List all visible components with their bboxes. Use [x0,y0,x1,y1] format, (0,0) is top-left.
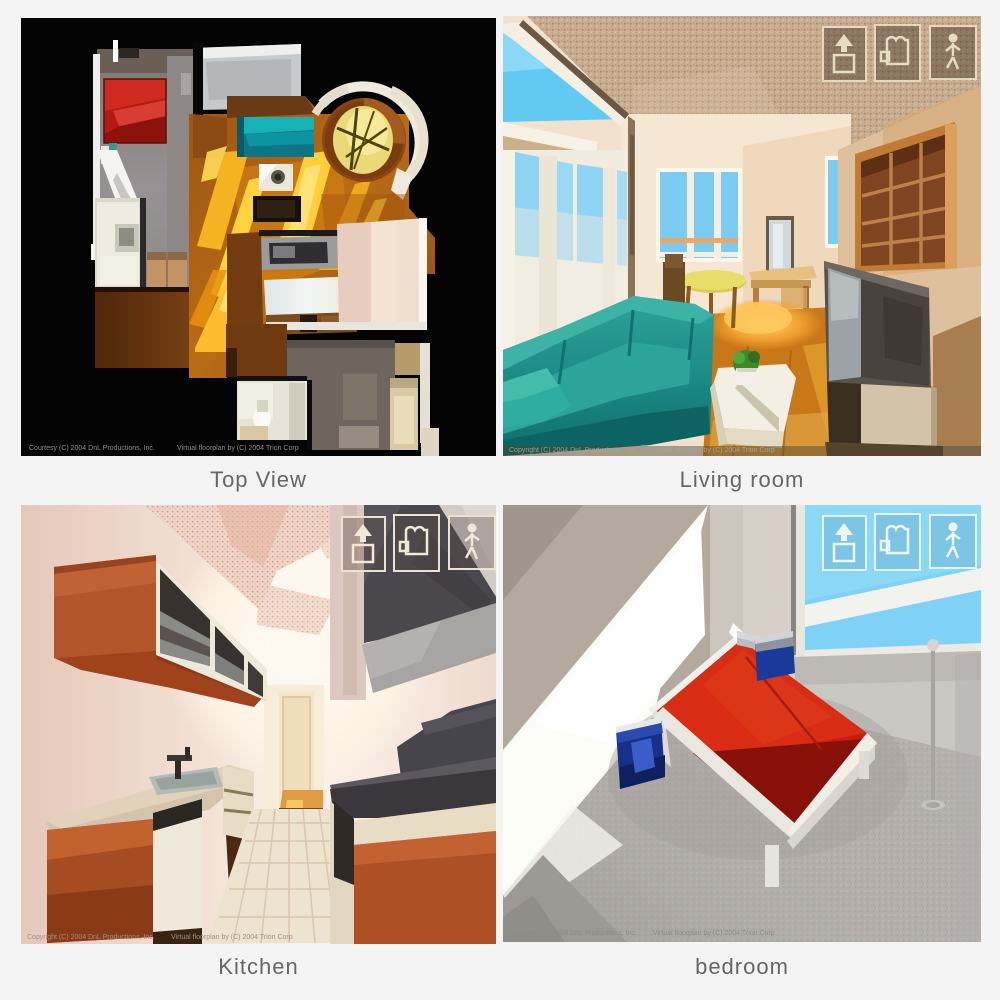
svg-text:Copyright (C) 2004 DnL Produc: Copyright (C) 2004 DnL Productions, Inc. [509,447,637,454]
svg-text:Copyright (C) 2004 DnL Produc: Copyright (C) 2004 DnL Productions, Inc. [27,934,155,941]
svg-text:Copyright (C) 2004 DnL Produc: Copyright (C) 2004 DnL Productions, Inc. [509,930,637,937]
svg-text:Virtual floorplan by (C) 2004: Virtual floorplan by (C) 2004 Trion Corp [177,445,299,452]
svg-text:Virtual floorplan by (C) 2004: Virtual floorplan by (C) 2004 Trion Corp [653,930,775,937]
svg-text:Courtesy (C) 2004 DnL Product: Courtesy (C) 2004 DnL Productions, Inc. [29,445,155,452]
svg-text:Virtual floorplan by (C) 2004: Virtual floorplan by (C) 2004 Trion Corp [171,934,293,941]
svg-text:Virtual floorplan by (C) 2004: Virtual floorplan by (C) 2004 Trion Corp [653,447,775,454]
